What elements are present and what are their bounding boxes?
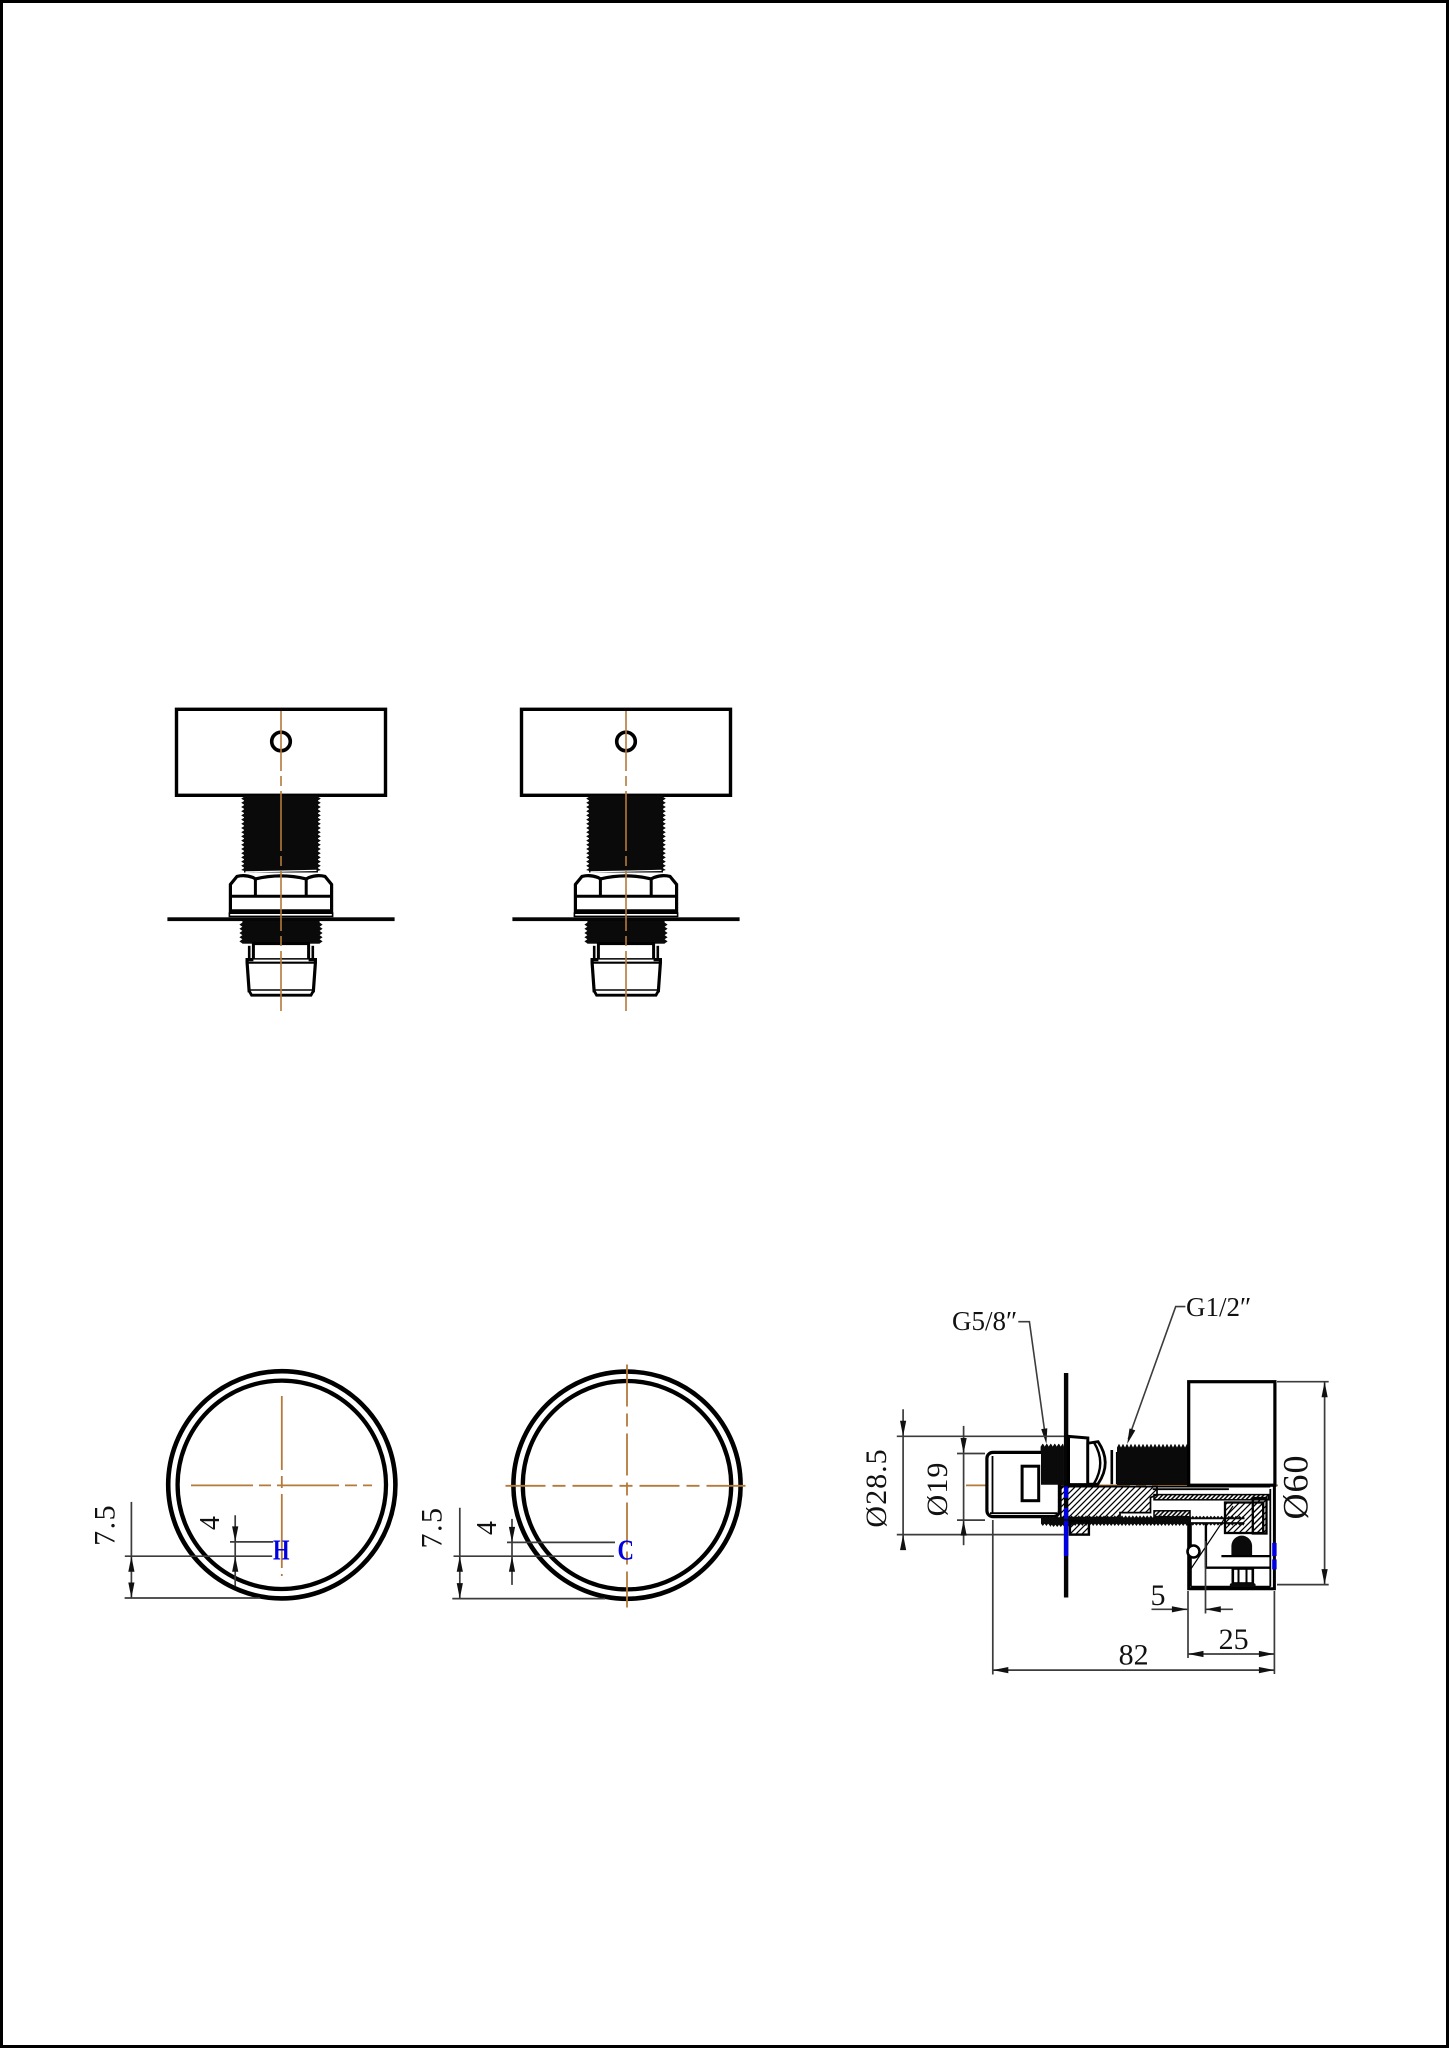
- svg-text:82: 82: [1119, 1639, 1149, 1672]
- svg-text:Ø28.5: Ø28.5: [860, 1448, 893, 1527]
- svg-text:25: 25: [1219, 1623, 1249, 1656]
- svg-text:G5/8″: G5/8″: [952, 1306, 1017, 1336]
- svg-text:C: C: [618, 1535, 635, 1567]
- svg-text:7.5: 7.5: [89, 1504, 122, 1546]
- svg-text:5: 5: [1151, 1579, 1166, 1612]
- svg-text:7.5: 7.5: [416, 1507, 449, 1549]
- svg-text:4: 4: [472, 1521, 503, 1535]
- svg-text:Ø19: Ø19: [921, 1462, 954, 1517]
- svg-text:G1/2″: G1/2″: [1186, 1292, 1251, 1322]
- svg-text:Ø60: Ø60: [1276, 1455, 1316, 1520]
- svg-text:4: 4: [195, 1516, 226, 1530]
- svg-text:H: H: [273, 1535, 290, 1567]
